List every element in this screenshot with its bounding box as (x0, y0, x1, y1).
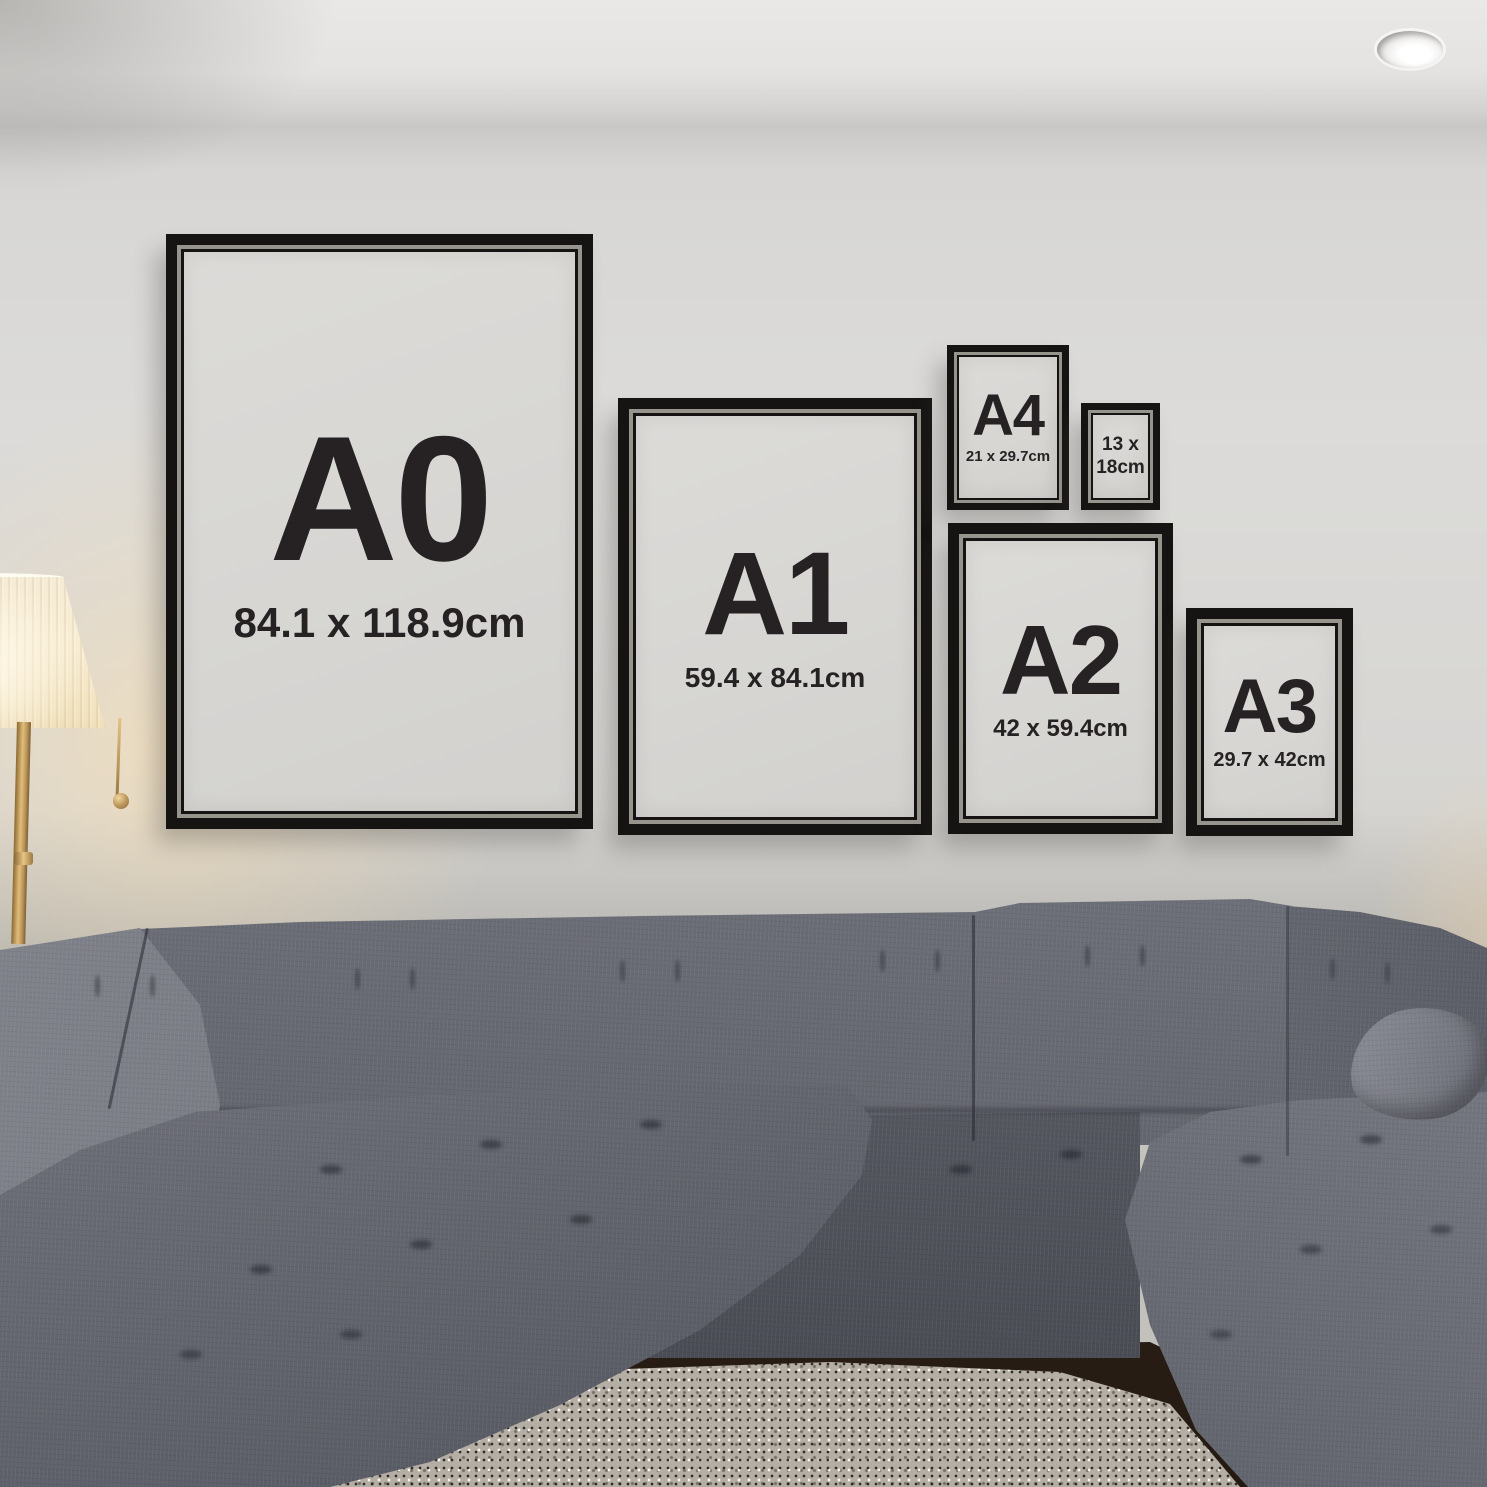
paper-size-label: A0 (269, 415, 489, 582)
size-guide-frame-a2: A2 42 x 59.4cm (948, 523, 1173, 834)
floor-lamp-pole-joint (14, 852, 33, 865)
paper-size-label: A2 (1000, 614, 1121, 706)
lamp-pull-chain-ball (113, 793, 129, 809)
size-guide-frame-a4: A4 21 x 29.7cm (947, 345, 1069, 510)
paper-size-label: A3 (1222, 671, 1316, 742)
paper-size-dimensions: 84.1 x 118.9cm (234, 598, 526, 648)
paper-size-dimensions: 13 x 18cm (1096, 434, 1145, 479)
size-guide-frame-a0: A0 84.1 x 118.9cm (166, 234, 593, 829)
paper-size-dimensions: 42 x 59.4cm (993, 715, 1128, 743)
frame-inner-lip: A1 59.4 x 84.1cm (633, 413, 917, 820)
frame-paper: A1 59.4 x 84.1cm (636, 416, 914, 817)
living-room-scene: A0 84.1 x 118.9cm A1 59.4 x 84.1cm A4 21… (0, 0, 1487, 1487)
lamp-pull-chain (116, 718, 122, 796)
frame-inner-lip: A2 42 x 59.4cm (963, 538, 1158, 819)
frame-paper: 13 x 18cm (1093, 415, 1148, 498)
frame-bevel: A3 29.7 x 42cm (1197, 619, 1342, 825)
frame-inner-lip: A0 84.1 x 118.9cm (181, 249, 578, 814)
frame-inner-lip: 13 x 18cm (1091, 413, 1150, 500)
frame-inner-lip: A4 21 x 29.7cm (957, 355, 1059, 500)
floor-lamp-shade (0, 577, 105, 728)
size-guide-frame-a3: A3 29.7 x 42cm (1186, 608, 1353, 836)
frame-bevel: A0 84.1 x 118.9cm (177, 245, 582, 818)
recessed-ceiling-light (1377, 31, 1443, 68)
paper-size-dimensions: 59.4 x 84.1cm (685, 661, 866, 694)
frame-paper: A0 84.1 x 118.9cm (184, 252, 575, 811)
sofa-back-seam (972, 915, 975, 1141)
frame-paper: A2 42 x 59.4cm (966, 541, 1155, 816)
paper-size-label: A4 (972, 389, 1044, 444)
frame-paper: A4 21 x 29.7cm (959, 357, 1057, 498)
paper-size-dimensions: 29.7 x 42cm (1213, 749, 1325, 773)
frame-bevel: A1 59.4 x 84.1cm (629, 409, 921, 824)
paper-size-dimensions: 21 x 29.7cm (966, 448, 1050, 466)
frame-bevel: A4 21 x 29.7cm (954, 352, 1062, 503)
sofa-seat-tufts (0, 0, 22, 9)
size-guide-frame-a1: A1 59.4 x 84.1cm (618, 398, 932, 835)
frame-paper: A3 29.7 x 42cm (1204, 626, 1335, 818)
frame-bevel: 13 x 18cm (1088, 410, 1153, 503)
sofa-corner-seam (1286, 906, 1289, 1156)
paper-size-label: A1 (702, 539, 848, 650)
size-guide-frame-13x18: 13 x 18cm (1081, 403, 1160, 510)
frame-inner-lip: A3 29.7 x 42cm (1201, 623, 1338, 821)
frame-bevel: A2 42 x 59.4cm (959, 534, 1162, 823)
